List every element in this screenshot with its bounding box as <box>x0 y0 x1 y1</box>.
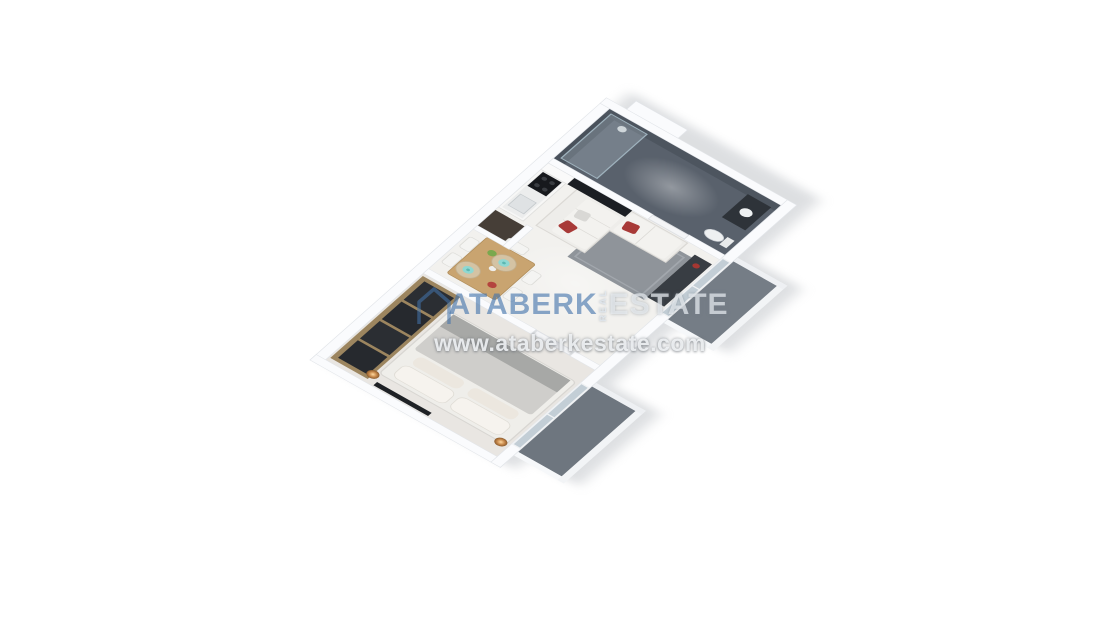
floorplan-render <box>0 0 1120 630</box>
screenshot-canvas: ATABERK REAL ESTATE www.ataberkestate.co… <box>0 0 1120 630</box>
apartment <box>310 86 871 502</box>
